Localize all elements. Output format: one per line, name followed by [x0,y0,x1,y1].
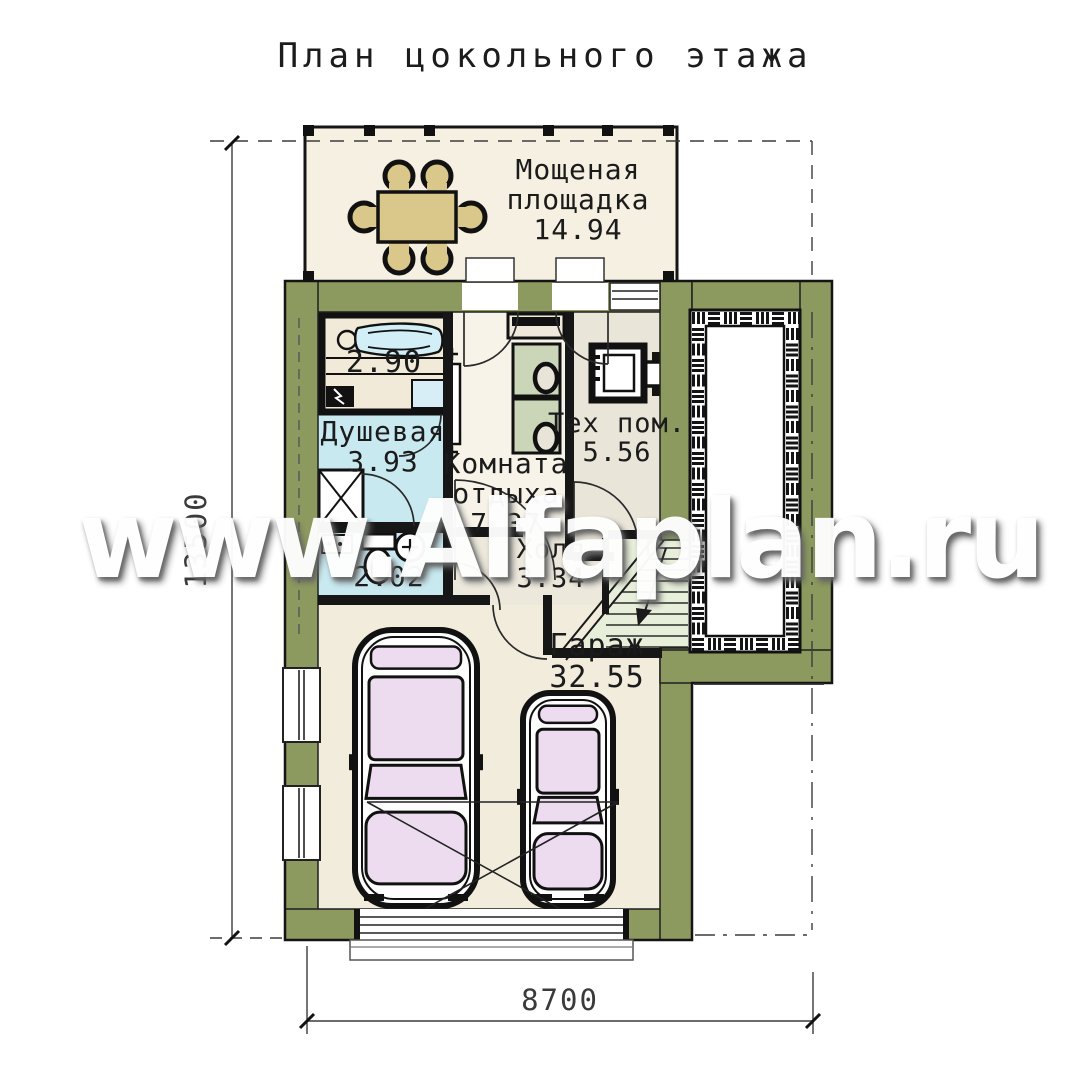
terrace-name: Мощеная площадка [478,155,678,215]
dimension-width: 8700 [521,983,599,1017]
tech-area: 5.56 [532,439,702,468]
garage-apron [350,940,633,960]
page-title: План цокольного этажа [278,36,813,76]
floor-plan-page: План цокольного этажа Мощеная площадка 1… [0,0,1080,1080]
garage-area: 32.55 [517,662,677,694]
sauna-area: 2.90 [346,347,422,379]
watermark: www.Alfaplan.ru [50,478,1070,603]
terrace-area: 14.94 [478,215,678,245]
window-left-1 [283,668,320,742]
door-step [556,258,604,282]
shower-name: Душевая [293,417,473,447]
room-label-tech: Тех пом. 5.56 [532,410,702,468]
door-step [466,258,514,282]
room-label-sauna: 2.90 [346,347,422,379]
tech-name: Тех пом. [532,410,702,439]
window-left-2 [283,786,320,860]
window-top [610,283,660,310]
room-label-garage: Гараж 32.55 [517,630,677,694]
table [378,192,456,242]
room-label-terrace: Мощеная площадка 14.94 [478,155,678,245]
garage-name: Гараж [517,630,677,662]
